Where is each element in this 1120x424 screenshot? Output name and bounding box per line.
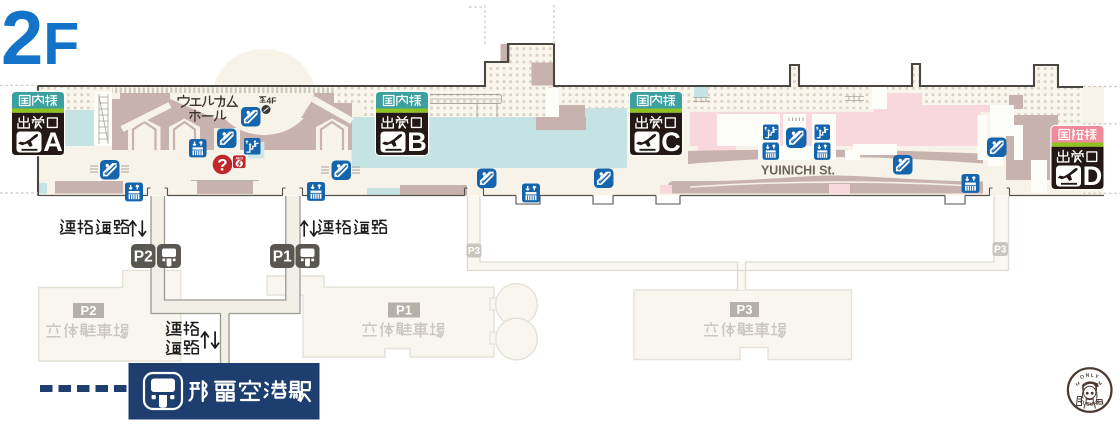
svg-text:C: C [661, 127, 681, 157]
svg-text:A: A [43, 127, 63, 157]
svg-text:4F: 4F [267, 96, 277, 106]
svg-text:P1: P1 [396, 303, 412, 318]
svg-text:P1: P1 [273, 249, 292, 266]
svg-text:P2: P2 [81, 303, 97, 318]
svg-text:D: D [1083, 161, 1103, 191]
svg-text:?: ? [217, 156, 227, 175]
svg-text:YUINICHI St.: YUINICHI St. [761, 164, 835, 178]
svg-text:P2: P2 [134, 249, 153, 266]
svg-text:2F: 2F [1, 0, 79, 81]
svg-text:P3: P3 [994, 245, 1007, 256]
svg-text:AED: AED [235, 157, 243, 161]
svg-text:P3: P3 [468, 246, 481, 257]
svg-text:P3: P3 [737, 302, 753, 317]
svg-text:B: B [407, 127, 427, 157]
